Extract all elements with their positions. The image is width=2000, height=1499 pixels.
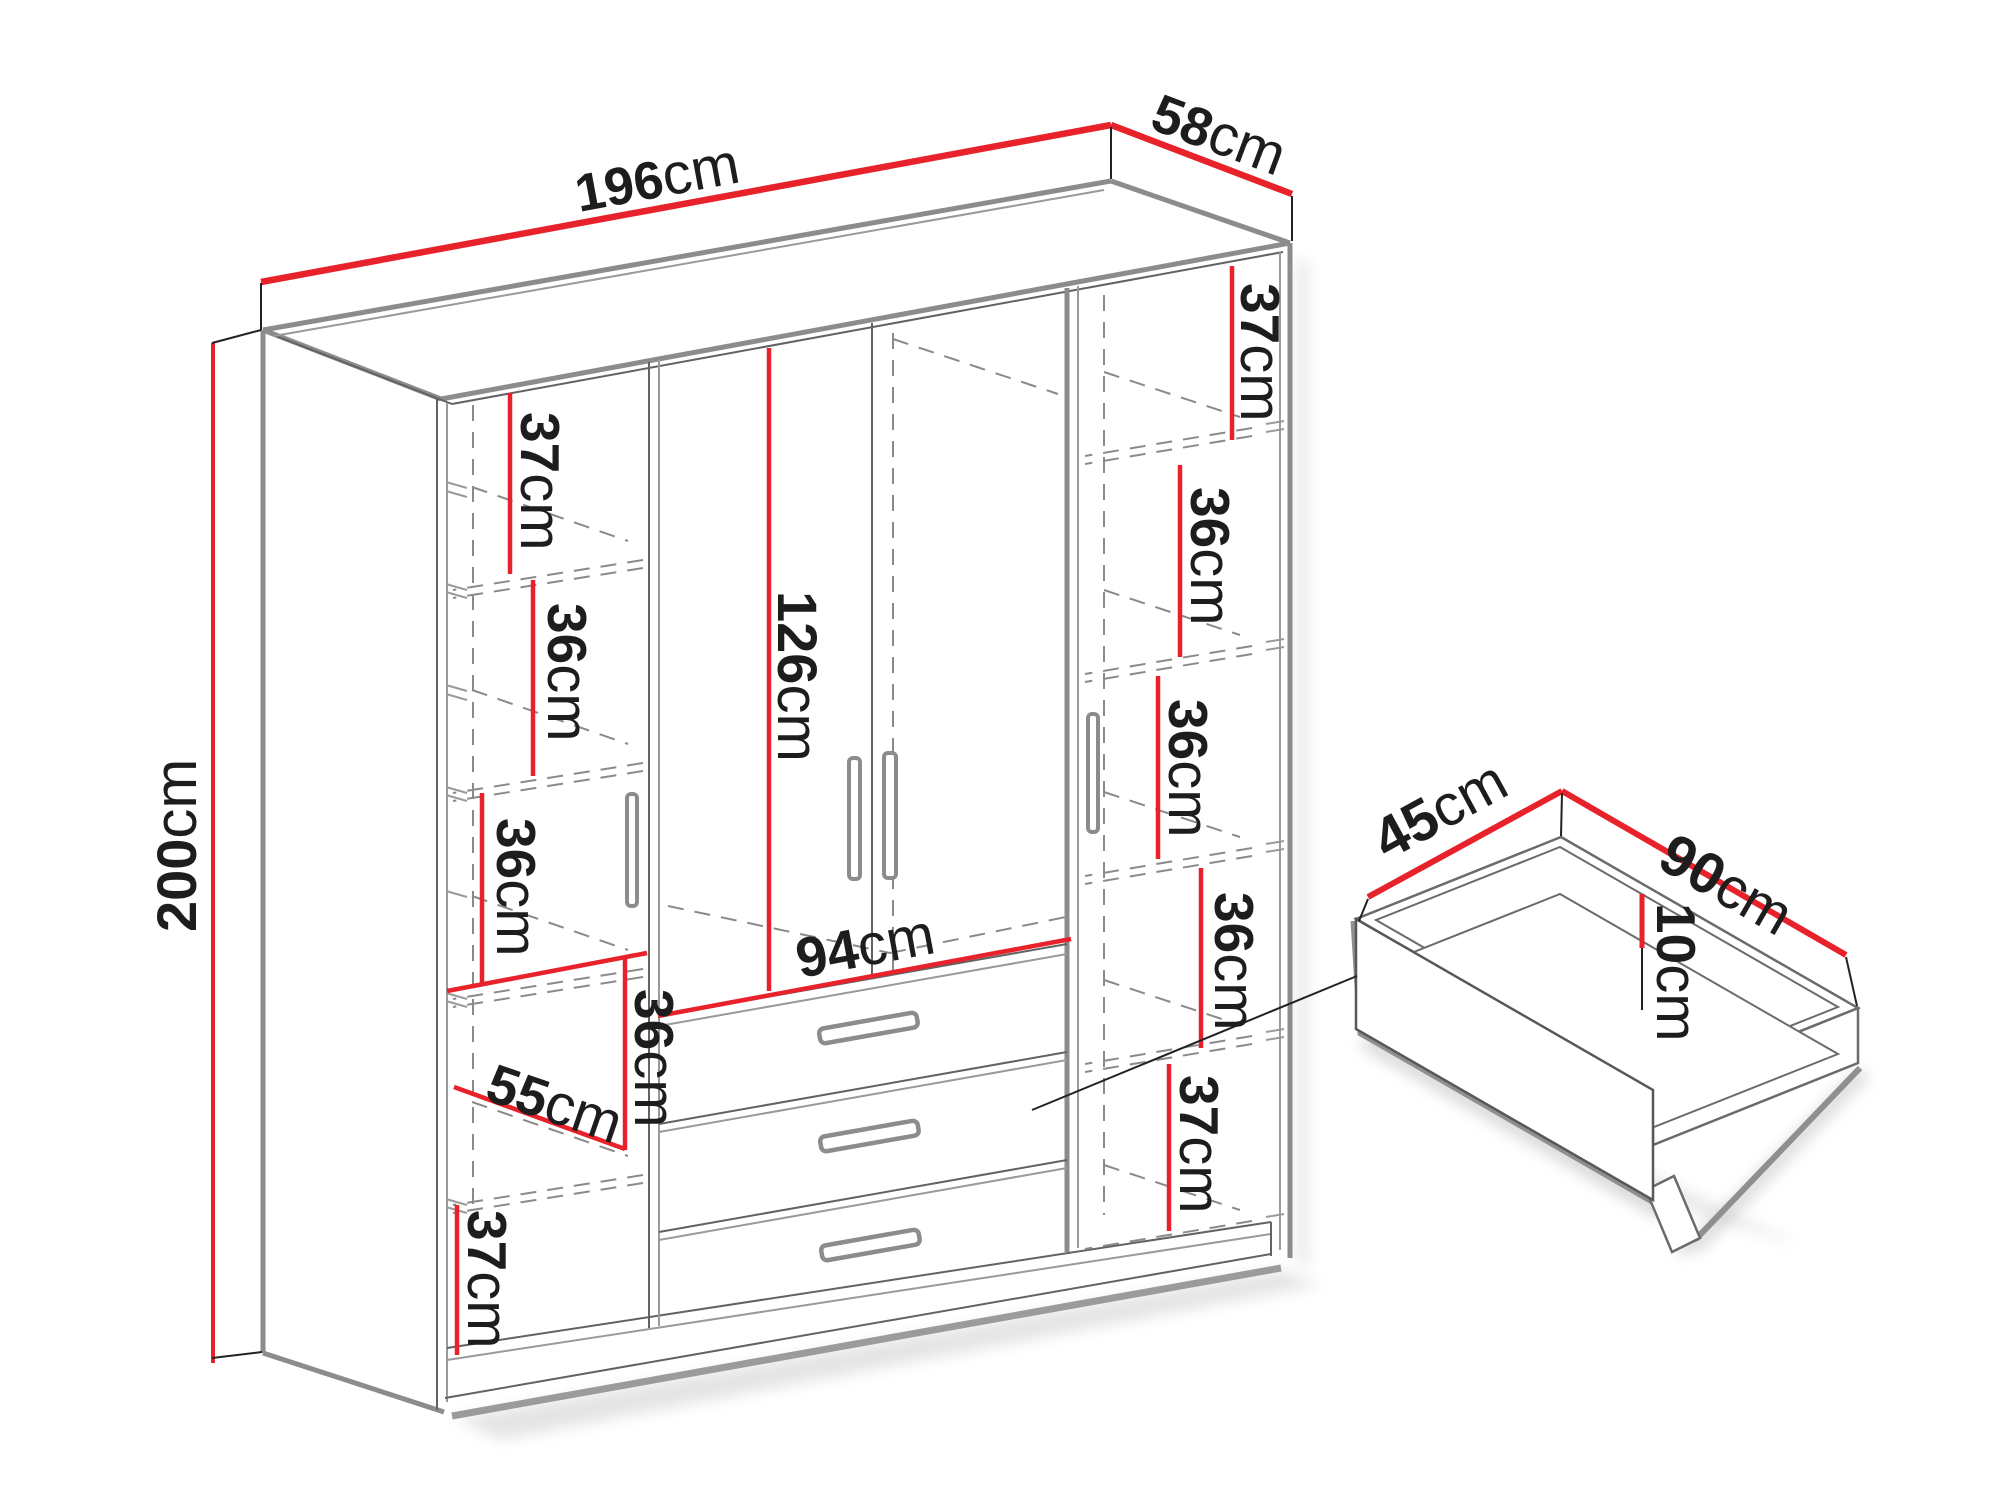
svg-text:37cm: 37cm: [508, 412, 573, 551]
svg-text:36cm: 36cm: [1178, 487, 1243, 626]
svg-text:36cm: 36cm: [535, 603, 600, 742]
svg-text:200cm: 200cm: [142, 759, 209, 932]
svg-text:37cm: 37cm: [1167, 1075, 1232, 1214]
svg-text:37cm: 37cm: [455, 1210, 520, 1349]
svg-text:36cm: 36cm: [622, 989, 687, 1128]
svg-text:36cm: 36cm: [1156, 699, 1221, 838]
svg-text:36cm: 36cm: [484, 818, 549, 957]
svg-text:37cm: 37cm: [1228, 283, 1293, 422]
svg-text:36cm: 36cm: [1202, 892, 1267, 1031]
svg-text:10cm: 10cm: [1644, 903, 1709, 1042]
svg-text:126cm: 126cm: [765, 591, 830, 762]
